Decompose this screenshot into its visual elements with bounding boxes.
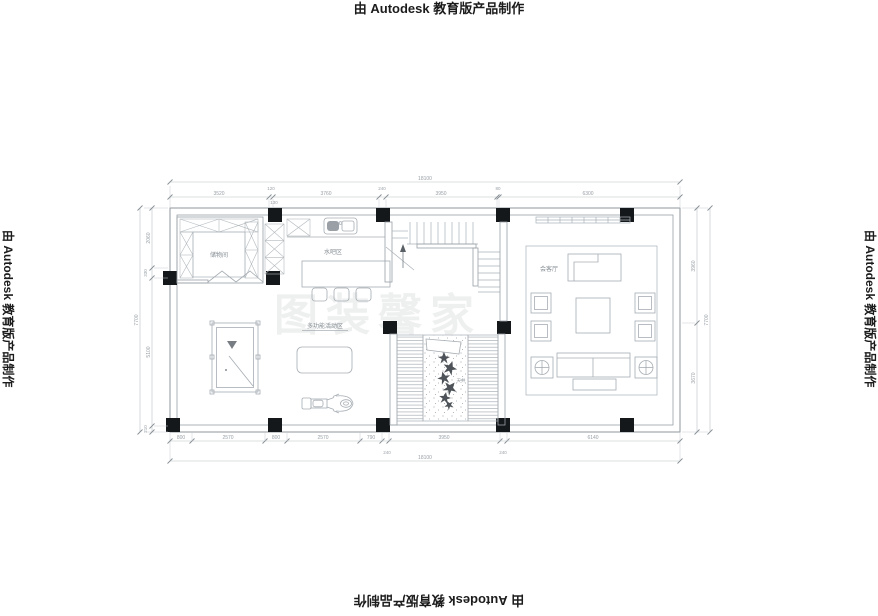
svg-text:790: 790 (367, 435, 376, 441)
storage-room-label: 储物间 (210, 251, 228, 259)
svg-text:6140: 6140 (587, 435, 598, 441)
svg-text:80: 80 (495, 186, 501, 191)
stamp-bottom: 由 Autodesk 教育版产品制作 (354, 593, 524, 608)
deck-stripes (397, 335, 423, 421)
svg-text:5100: 5100 (146, 346, 152, 357)
svg-text:3520: 3520 (213, 191, 224, 197)
side-table (297, 347, 352, 373)
svg-text:2570: 2570 (317, 435, 328, 441)
svg-text:210: 210 (143, 425, 148, 433)
svg-text:3950: 3950 (438, 435, 449, 441)
chaise-sofa-icon (568, 254, 621, 281)
svg-text:2570: 2570 (222, 435, 233, 441)
window-icon (536, 217, 630, 223)
courtyard-label: 天井 (457, 377, 466, 384)
plant-table-icon (635, 357, 657, 378)
svg-text:2060: 2060 (146, 232, 152, 243)
storage-room: 储物间 (177, 217, 263, 283)
dimensions-right: 3960 3670 7700 (682, 206, 713, 435)
sink-icon (324, 218, 357, 234)
stamp-right: 由 Autodesk 教育版产品制作 (863, 230, 878, 387)
svg-text:7700: 7700 (704, 314, 710, 325)
dimensions-left: 2060 330 5100 210 7700 (134, 206, 168, 435)
svg-text:多功能活动区: 多功能活动区 (307, 322, 343, 330)
svg-text:7700: 7700 (134, 314, 140, 325)
shaft-cabinet (265, 219, 310, 274)
motorcycle-icon (302, 394, 353, 413)
svg-text:240: 240 (378, 186, 386, 191)
svg-text:800: 800 (272, 435, 281, 441)
svg-text:240: 240 (499, 450, 507, 455)
svg-text:3960: 3960 (691, 260, 697, 271)
coffee-table-icon (576, 298, 610, 333)
armchair-icon (531, 293, 551, 313)
svg-text:240: 240 (383, 450, 391, 455)
reception-label: 会客厅 (540, 265, 558, 273)
stamp-left: 由 Autodesk 教育版产品制作 (1, 230, 16, 387)
reception-room: 会客厅 (500, 217, 657, 395)
svg-text:800: 800 (177, 435, 186, 441)
staircase (386, 222, 500, 292)
bar-counter (302, 261, 390, 287)
center-watermark: 图装馨家 (274, 290, 482, 341)
armchair-icon (635, 321, 655, 341)
svg-text:6300: 6300 (582, 191, 593, 197)
sofa-icon (557, 353, 630, 377)
cad-floorplan-canvas: 由 Autodesk 教育版产品制作 由 Autodesk 教育版产品制作 由 … (0, 0, 878, 616)
stamp-top: 由 Autodesk 教育版产品制作 (354, 1, 524, 16)
svg-text:18100: 18100 (418, 455, 432, 461)
water-bar-label: 水吧区 (324, 248, 342, 256)
svg-text:120: 120 (267, 186, 275, 191)
svg-text:18100: 18100 (418, 176, 432, 182)
courtyard: 天井 (390, 334, 505, 425)
dimensions-top: 18100 3520 120 130 3760 240 3950 80 6300 (168, 176, 683, 207)
multifunction-label: 多功能活动区 (302, 322, 348, 331)
svg-text:3760: 3760 (320, 191, 331, 197)
ottoman-icon (573, 379, 616, 390)
bifold-door-icon (208, 271, 236, 282)
svg-text:330: 330 (143, 269, 148, 277)
armchair-icon (635, 293, 655, 313)
deck-stripes (468, 335, 498, 421)
dimensions-bottom: 800 2570 800 2570 790 3950 6140 240 240 … (168, 433, 683, 464)
svg-text:3950: 3950 (435, 191, 446, 197)
svg-text:3670: 3670 (691, 372, 697, 383)
pool-table-icon (210, 321, 260, 394)
armchair-icon (531, 321, 551, 341)
plant-table-icon (531, 357, 553, 378)
stair-direction-arrow (400, 244, 406, 268)
floorplan-svg: 由 Autodesk 教育版产品制作 由 Autodesk 教育版产品制作 由 … (0, 0, 878, 616)
svg-text:130: 130 (270, 200, 278, 205)
